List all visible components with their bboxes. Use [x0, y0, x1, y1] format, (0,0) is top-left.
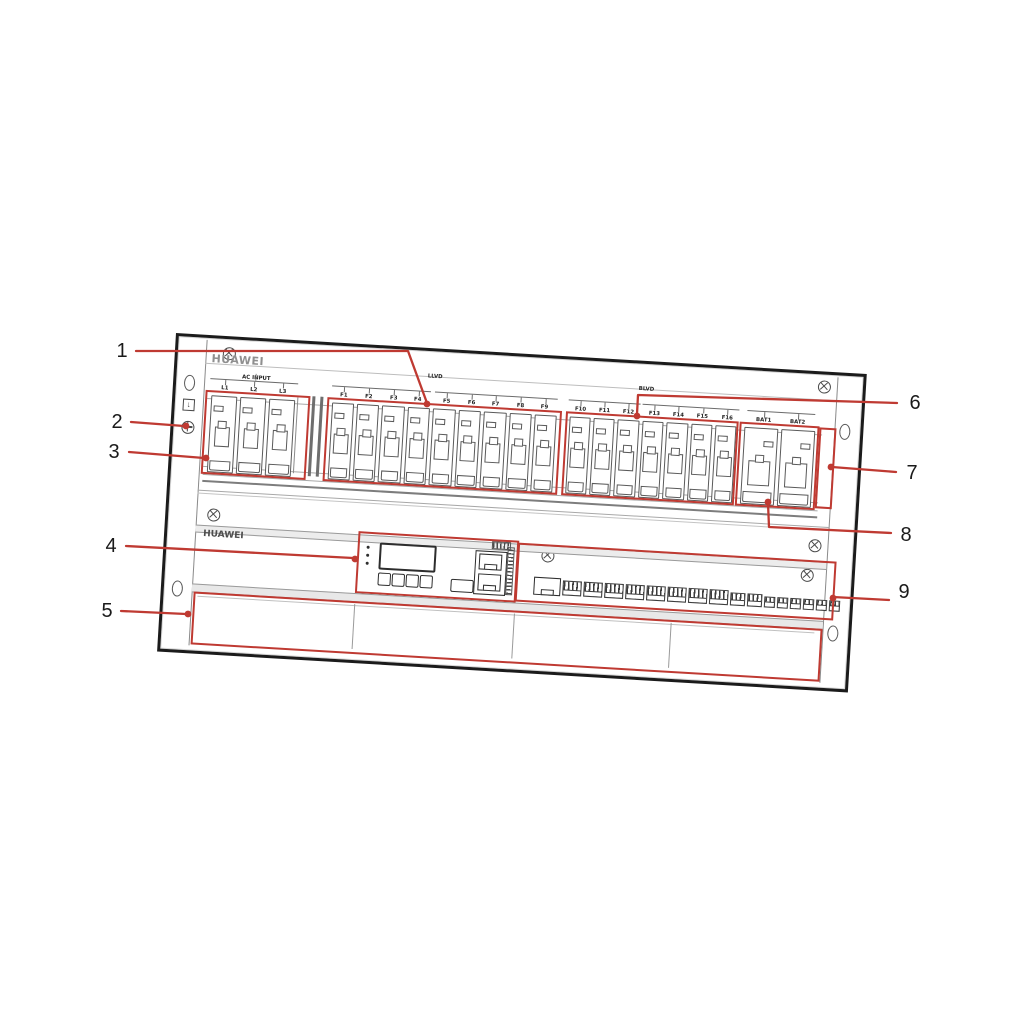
callout-7: 7 [900, 462, 924, 485]
blvd-title: BLVD [626, 377, 667, 397]
callout-8: 8 [894, 524, 918, 547]
annotation-box-7-filler-panel [815, 427, 837, 509]
callout-6: 6 [903, 392, 927, 415]
screw-icon [808, 539, 822, 553]
annotation-box-6-blvd-breakers [561, 411, 739, 505]
screw-icon [818, 380, 832, 394]
callout-1: 1 [110, 340, 134, 363]
power-distribution-subrack: ↓ HUAWEI AC INPUT LLVD BLVD L1L2L3 F1F2F… [157, 333, 867, 692]
figure-canvas: ↓ HUAWEI AC INPUT LLVD BLVD L1L2L3 F1F2F… [0, 0, 1020, 1020]
annotation-box-1-llvd-breakers [322, 397, 562, 495]
mounting-hole [839, 424, 851, 441]
mounting-hole [171, 580, 183, 597]
callout-5: 5 [95, 600, 119, 623]
annotation-box-3-ac-breakers [201, 390, 311, 480]
ground-screw [181, 420, 195, 434]
section-divider [316, 397, 324, 477]
callout-9: 9 [892, 581, 916, 604]
annotation-box-4-controller [355, 531, 519, 602]
screw-icon [207, 508, 221, 522]
callout-2: 2 [105, 411, 129, 434]
mounting-hole [827, 625, 839, 642]
ground-symbol-icon: ↓ [182, 399, 195, 412]
subrack-brand-label: HUAWEI [203, 523, 245, 543]
annotation-box-8-battery-breakers [735, 422, 820, 511]
callout-4: 4 [99, 535, 123, 558]
mounting-hole [184, 375, 196, 392]
callout-3: 3 [102, 441, 126, 464]
llvd-title: LLVD [415, 364, 456, 384]
